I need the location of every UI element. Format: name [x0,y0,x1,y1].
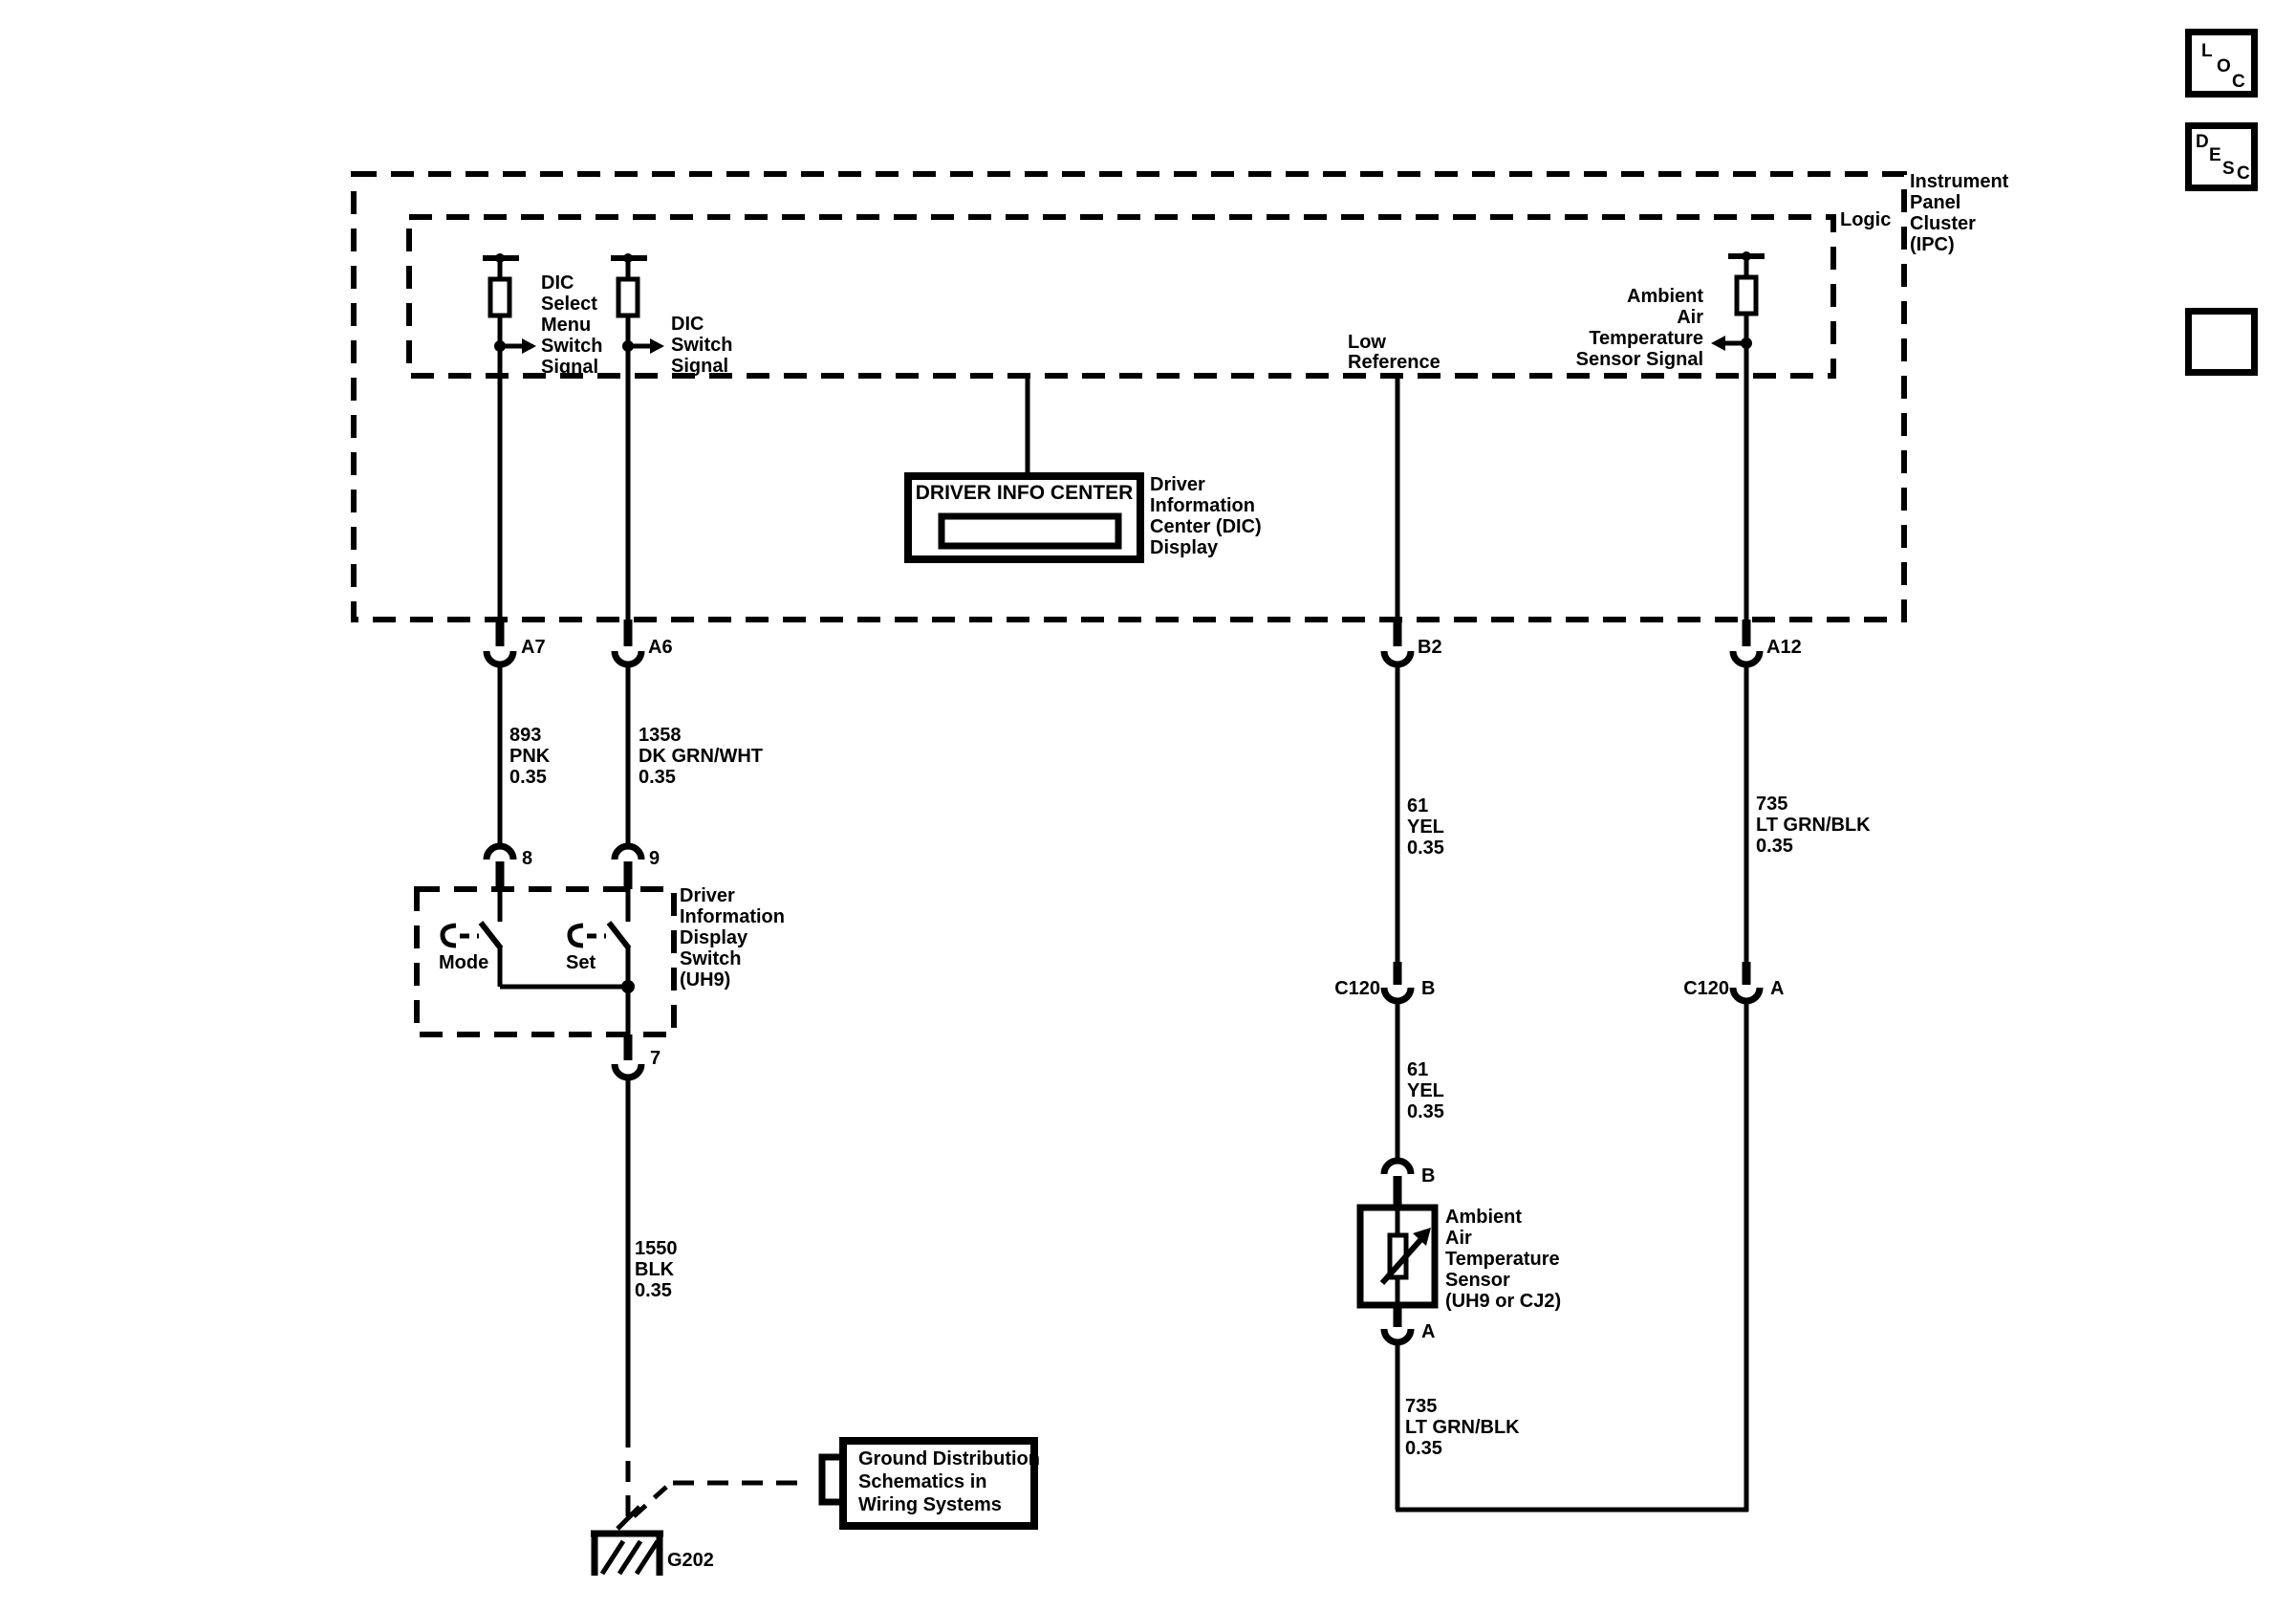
set-actuator-icon [570,925,583,946]
connector-b2-arc [1384,651,1411,664]
set-switch-label: Set [566,952,596,973]
dic-switch-resistor [611,253,664,620]
dic-select-signal-label: DIC Select Menu Switch Signal [541,272,602,378]
connector-b2-label: B2 [1418,637,1442,658]
ipc-name-label: Instrument Panel Cluster (IPC) [1910,171,2008,255]
connector-a7-arc [487,651,513,664]
connector-a6-arc [615,651,641,664]
aat-signal-label: Ambient Air Temperature Sensor Signal [1576,286,1703,370]
mode-actuator-icon [443,925,456,946]
desc-letter: E [2209,145,2221,166]
c120-a-name-label: C120 [1683,978,1729,999]
dic-select-resistor [483,253,536,620]
mode-switch-blade [481,923,501,948]
desc-letter: D [2196,132,2209,153]
desc-letter: C [2237,163,2250,185]
desc-button[interactable]: D E S C [2185,122,2258,191]
ground-ref-label: G202 [667,1550,714,1571]
loc-letter: L [2201,41,2213,62]
sensor-pin-a-label: A [1421,1321,1435,1342]
connector-8-arc [487,846,513,860]
connector-a6-label: A6 [648,637,673,658]
wire-61-lower-label: 61YEL0.35 [1407,1059,1444,1122]
desc-letter: S [2222,159,2235,180]
c120-pin-b-label: B [1421,978,1435,999]
ground-symbol [591,1531,663,1576]
low-reference-label: Low Reference [1348,333,1440,373]
sensor-pin-b-label: B [1421,1165,1435,1186]
connector-a12-label: A12 [1766,637,1802,658]
display-switch-label: Driver Information Display Switch (UH9) [680,885,785,991]
dic-switch-wire [615,620,641,889]
aat-signal-wire [1733,620,1760,1512]
connector-c120b-arc [1384,988,1411,1001]
dic-display-title: DRIVER INFO CENTER [908,483,1140,504]
dic-display-screen [942,516,1118,546]
connector-8-label: 8 [522,848,532,869]
back-button[interactable] [2185,308,2258,376]
wire-1358-label: 1358DK GRN/WHT0.35 [639,725,763,788]
ground-distribution-label[interactable]: Ground Distribution Schematics in Wiring… [858,1448,1040,1516]
sensor-pin-a-arc [1384,1329,1411,1342]
sensor-name-label: Ambient Air Temperature Sensor (UH9 or C… [1445,1207,1561,1312]
dic-display-label: Driver Information Center (DIC) Display [1150,474,1262,558]
wiring-diagram-page: Instrument Panel Cluster (IPC) Logic DIC… [0,0,2296,1611]
connector-7-arc [615,1064,641,1078]
loc-button[interactable]: L O C [2185,29,2258,98]
aat-signal-resistor [1711,251,1765,620]
connector-a7-label: A7 [521,637,546,658]
ambient-air-temp-sensor [1360,1208,1435,1305]
connector-a12-arc [1733,651,1760,664]
wire-735-lower-label: 735LT GRN/BLK0.35 [1405,1396,1520,1459]
c120-b-name-label: C120 [1334,978,1380,999]
c120-pin-a-label: A [1770,978,1784,999]
wire-735-right-label: 735LT GRN/BLK0.35 [1756,794,1871,857]
connector-9-label: 9 [649,848,660,869]
sensor-pin-b-arc [1384,1161,1411,1174]
loc-letter: O [2217,56,2231,77]
set-switch-blade [609,923,629,948]
loc-letter: C [2232,72,2245,93]
logic-label: Logic [1840,209,1891,230]
connector-7-label: 7 [650,1048,661,1069]
wire-61-upper-label: 61YEL0.35 [1407,795,1444,859]
dic-switch-signal-label: DIC Switch Signal [671,314,732,377]
mode-switch-label: Mode [439,952,488,973]
wire-1550-label: 1550BLK0.35 [635,1238,678,1301]
low-reference-wire [1384,376,1748,1510]
connector-c120a-arc [1733,988,1760,1001]
connector-9-arc [615,846,641,860]
wire-893-label: 893PNK0.35 [509,725,550,788]
